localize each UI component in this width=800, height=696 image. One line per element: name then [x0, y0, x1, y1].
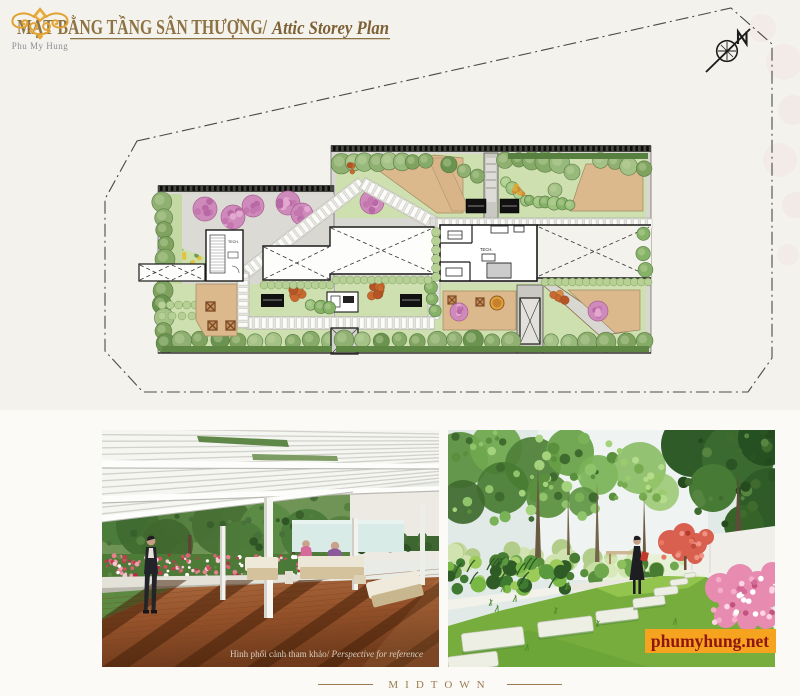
svg-text:TECH.: TECH. — [480, 247, 493, 252]
svg-text:phumyhung.net: phumyhung.net — [651, 631, 769, 651]
svg-text:Hình phối cảnh tham khảo/ Pers: Hình phối cảnh tham khảo/ Perspective fo… — [230, 649, 423, 660]
svg-text:TECH.: TECH. — [228, 240, 239, 244]
svg-text:Attic Storey Plan: Attic Storey Plan — [271, 18, 389, 39]
svg-text:Phu My Hung: Phu My Hung — [12, 41, 69, 51]
svg-text:MIDTOWN: MIDTOWN — [388, 679, 491, 691]
